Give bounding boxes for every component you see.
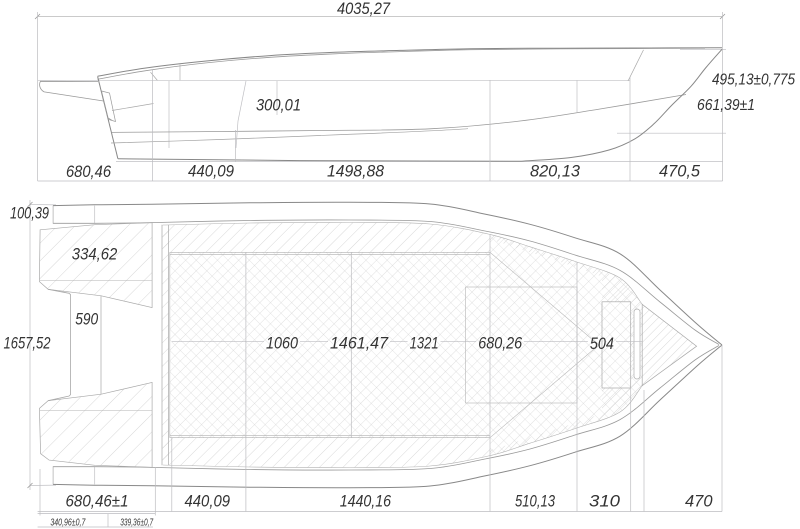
svg-text:340,96±0,7: 340,96±0,7	[50, 518, 85, 529]
svg-text:470: 470	[685, 492, 713, 511]
svg-text:680,46: 680,46	[66, 162, 111, 181]
svg-text:510,13: 510,13	[515, 492, 555, 511]
svg-text:470,5: 470,5	[659, 162, 701, 181]
svg-text:4035,27: 4035,27	[337, 0, 390, 18]
svg-text:1498,88: 1498,88	[327, 162, 385, 181]
svg-text:1060: 1060	[266, 334, 298, 353]
svg-text:495,13±0,775: 495,13±0,775	[712, 72, 795, 89]
svg-text:590: 590	[75, 310, 98, 329]
svg-text:300,01: 300,01	[256, 96, 301, 115]
svg-text:1440,16: 1440,16	[340, 492, 392, 511]
svg-text:680,26: 680,26	[478, 334, 522, 353]
svg-text:504: 504	[590, 334, 614, 353]
svg-text:334,62: 334,62	[72, 245, 118, 264]
svg-text:440,09: 440,09	[185, 492, 231, 511]
svg-text:339,36±0,7: 339,36±0,7	[120, 518, 153, 529]
svg-text:661,39±1: 661,39±1	[697, 97, 755, 114]
svg-text:1657,52: 1657,52	[4, 334, 51, 353]
svg-text:1321: 1321	[410, 334, 439, 353]
svg-text:100,39: 100,39	[10, 204, 49, 223]
svg-text:820,13: 820,13	[530, 162, 581, 181]
svg-text:1461,47: 1461,47	[330, 334, 389, 353]
svg-text:310: 310	[589, 492, 621, 511]
svg-text:440,09: 440,09	[188, 162, 234, 181]
svg-text:680,46±1: 680,46±1	[66, 492, 129, 511]
